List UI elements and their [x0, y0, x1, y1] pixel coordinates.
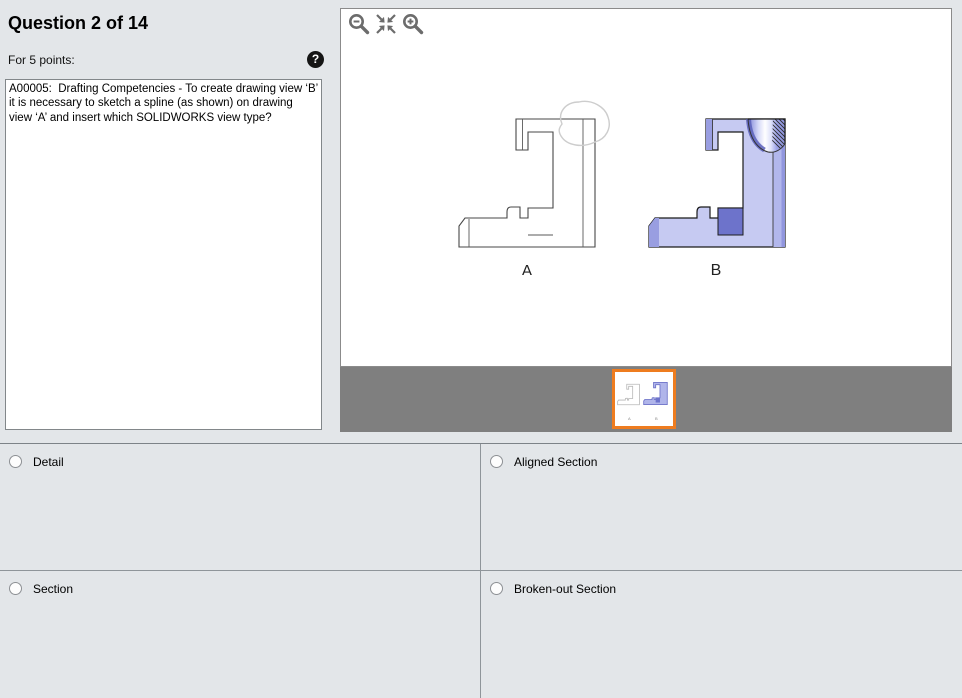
image-viewer: A [340, 8, 952, 432]
radio-aligned-section[interactable] [490, 455, 503, 468]
help-icon[interactable]: ? [307, 51, 324, 68]
answer-option-aligned-section: Aligned Section [481, 444, 962, 570]
drawing-b-boss [718, 208, 743, 235]
filmstrip: A B [340, 367, 952, 432]
answer-label[interactable]: Broken-out Section [514, 582, 616, 596]
zoom-out-icon [347, 12, 371, 36]
zoom-in-button[interactable] [399, 11, 426, 39]
zoom-toolbar [345, 11, 426, 39]
question-text: A00005: Drafting Competencies - To creat… [9, 83, 321, 124]
answer-option-section: Section [0, 571, 480, 698]
thumbnail-label-b: B [655, 416, 658, 421]
figure-label-b: B [711, 262, 722, 275]
thumbnail-mini-a [617, 381, 641, 407]
answer-option-broken-out-section: Broken-out Section [481, 571, 962, 698]
drawing-view-a: A [455, 95, 615, 275]
thumbnail-selected[interactable]: A B [612, 369, 676, 429]
radio-detail[interactable] [9, 455, 22, 468]
thumbnail-label-a: A [628, 416, 631, 421]
answer-label[interactable]: Aligned Section [514, 455, 597, 469]
drawing-a-outline [459, 119, 595, 247]
zoom-in-icon [401, 12, 425, 36]
thumbnail-mini-b [643, 379, 669, 407]
radio-broken-out-section[interactable] [490, 582, 503, 595]
answer-label[interactable]: Section [33, 582, 73, 596]
radio-section[interactable] [9, 582, 22, 595]
fit-to-window-button[interactable] [372, 11, 399, 39]
answer-label[interactable]: Detail [33, 455, 64, 469]
drawing-view-b: B [645, 95, 805, 275]
answer-option-detail: Detail [0, 444, 480, 570]
zoom-out-button[interactable] [345, 11, 372, 39]
viewer-canvas: A [340, 8, 952, 367]
question-text-box[interactable]: A00005: Drafting Competencies - To creat… [5, 79, 322, 430]
fit-to-window-icon [374, 12, 398, 36]
points-label: For 5 points: [8, 53, 75, 67]
page-title: Question 2 of 14 [8, 13, 148, 34]
figure-label-a: A [522, 263, 533, 275]
